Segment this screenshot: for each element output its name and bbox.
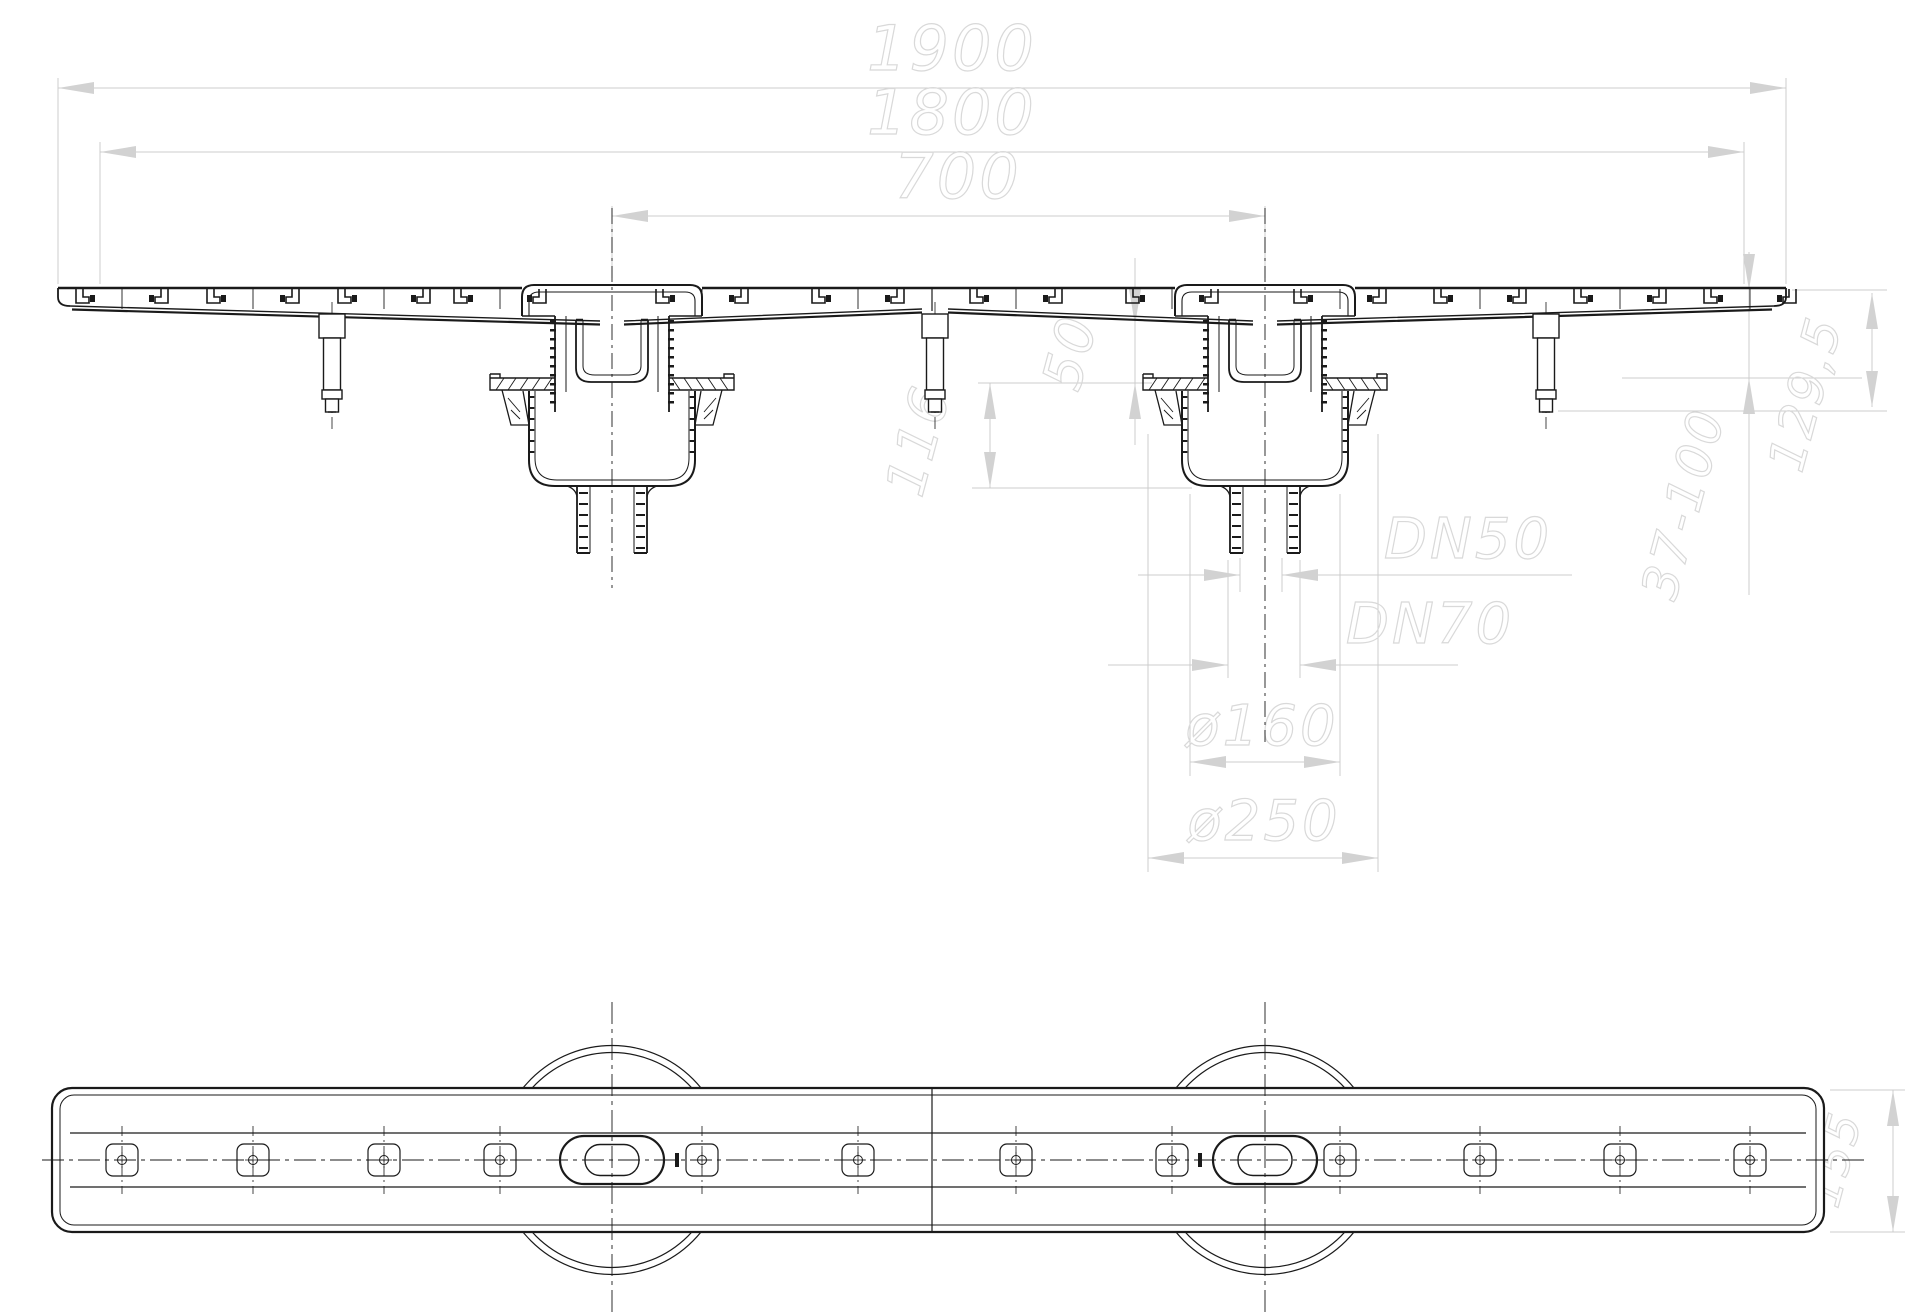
technical-drawing-canvas: 1900 1800 700 50 116 DN50 DN70 ø160 ø250… — [0, 0, 1920, 1315]
dim-outlet-dn70: DN70 — [1346, 592, 1514, 657]
dim-body-diameter: ø250 — [1186, 789, 1340, 854]
dim-total-height: 129,5 — [1757, 310, 1854, 478]
dimension-texts: 1900 1800 700 50 116 DN50 DN70 ø160 ø250… — [867, 12, 1873, 1213]
dim-flange-diameter: ø160 — [1184, 694, 1338, 759]
dim-outlet-dn50: DN50 — [1384, 507, 1552, 572]
dim-length-total: 1900 — [867, 12, 1037, 85]
dimension-lines — [58, 78, 1905, 1232]
joint-tick-right — [1198, 1153, 1202, 1167]
drawing-sheet: 1900 1800 700 50 116 DN50 DN70 ø160 ø250… — [0, 0, 1920, 1315]
dimension-arrowheads — [58, 82, 1899, 1232]
dim-length-body: 1800 — [867, 76, 1037, 149]
joint-tick-left — [675, 1153, 679, 1167]
dim-trap-height: 116 — [873, 378, 963, 503]
bottom-view — [42, 1002, 1866, 1315]
dim-foot-range: 37-100 — [1630, 402, 1737, 605]
dim-outlet-spacing: 700 — [894, 140, 1021, 213]
rim-clips — [76, 289, 1796, 309]
